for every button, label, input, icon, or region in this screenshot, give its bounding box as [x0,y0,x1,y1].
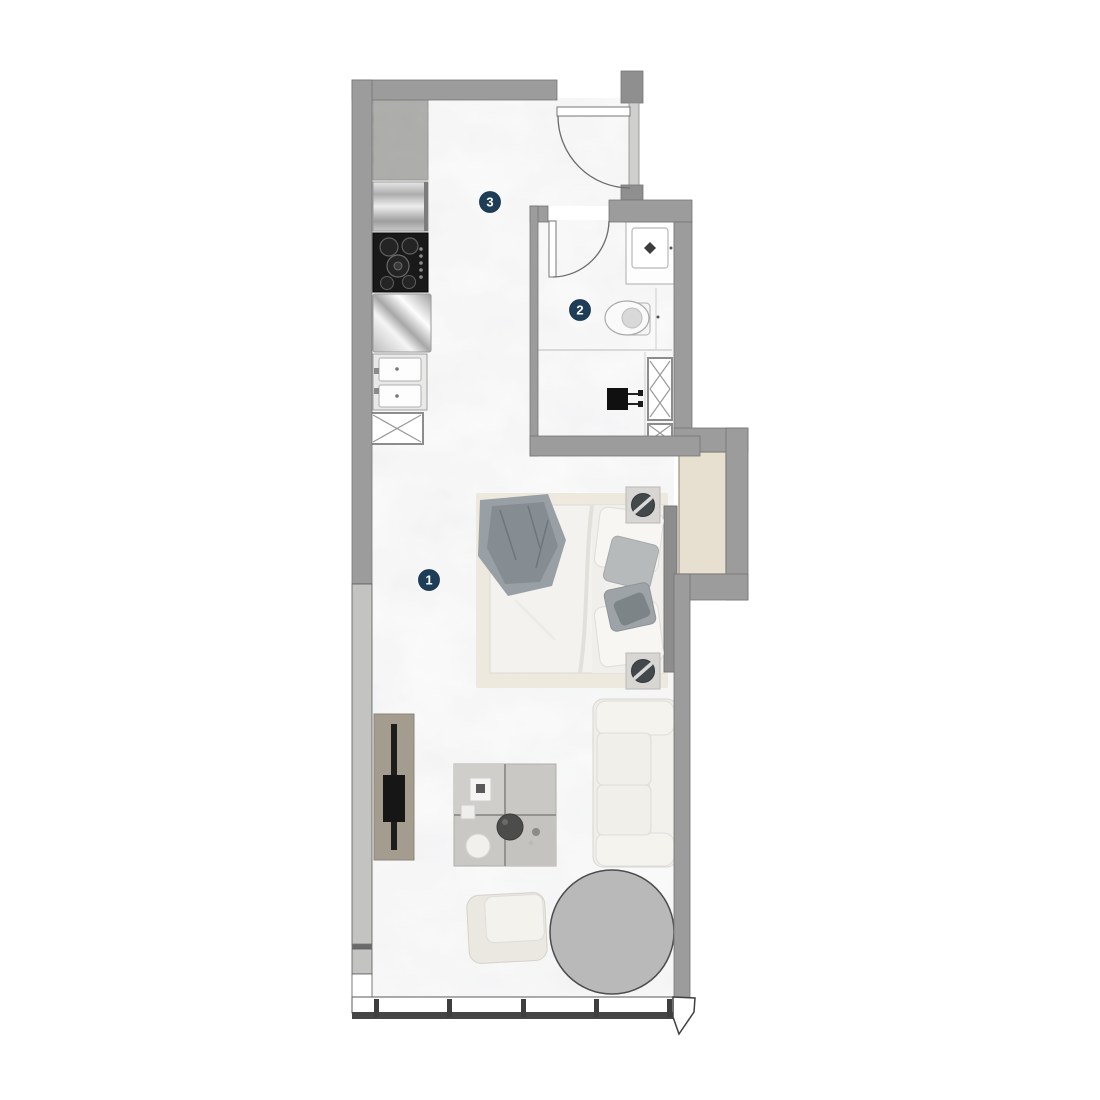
burner [380,238,398,256]
sofa-seat [597,785,651,835]
round-table [550,870,674,994]
nightstand [626,487,660,523]
bed-group [476,487,677,689]
wall-left [352,80,372,584]
window-left-divider [352,944,372,949]
wall-right-lower [674,574,690,1002]
tv-center [383,775,405,822]
vanity-sink [626,222,674,284]
bowl [497,814,523,840]
oven [373,182,428,231]
faucet-icon [374,368,379,374]
sink-basin [379,385,421,407]
double-sink [373,354,427,410]
room-label-3: 3 [480,192,501,213]
vent-shaft-kitchen [371,413,423,444]
bathroom-door-leaf [549,221,556,277]
room-number: 2 [576,303,583,318]
wall-bath-left [530,206,538,456]
burner [403,276,416,289]
wall-bath-top [609,200,692,222]
sofa-seat [597,733,651,785]
steel-counter [373,294,431,352]
faucet-icon [374,388,379,394]
room-label-1: 1 [419,570,440,591]
oven-edge [424,182,428,231]
room-number: 3 [486,195,493,210]
fridge-counter [373,98,428,180]
sofa-arm [596,701,674,735]
floor-niche [679,452,726,574]
sink-basin [379,358,421,381]
wall-entry-block [621,71,643,103]
sofa [593,699,677,867]
sofa-arm [596,833,674,866]
floor-plan-page: 1 2 3 [0,0,1100,1100]
wall-corner-box [352,974,372,997]
coffee-table [454,764,556,866]
vent-shaft-bath [648,358,672,420]
wall-bath-bottom [530,436,700,456]
plate [466,834,490,858]
kitchen [371,98,431,444]
entry-door-leaf [557,107,630,116]
burner [381,277,394,290]
wall-bath-right [674,222,692,436]
armchair [466,892,547,964]
room-label-2: 2 [570,300,591,321]
room-number: 1 [425,573,432,588]
nightstand [626,653,660,689]
window-left-glass [352,584,372,946]
window-left-glass2 [352,949,372,974]
wall-right-upper [629,103,639,197]
window-wall-bottom [352,997,695,1034]
floor-plan-drawing: 1 2 3 [0,0,1100,1100]
tv-console [374,714,414,860]
cooktop [373,233,428,292]
wall-top [352,80,557,100]
burner [402,238,418,254]
wall-corner-angled [673,997,695,1034]
